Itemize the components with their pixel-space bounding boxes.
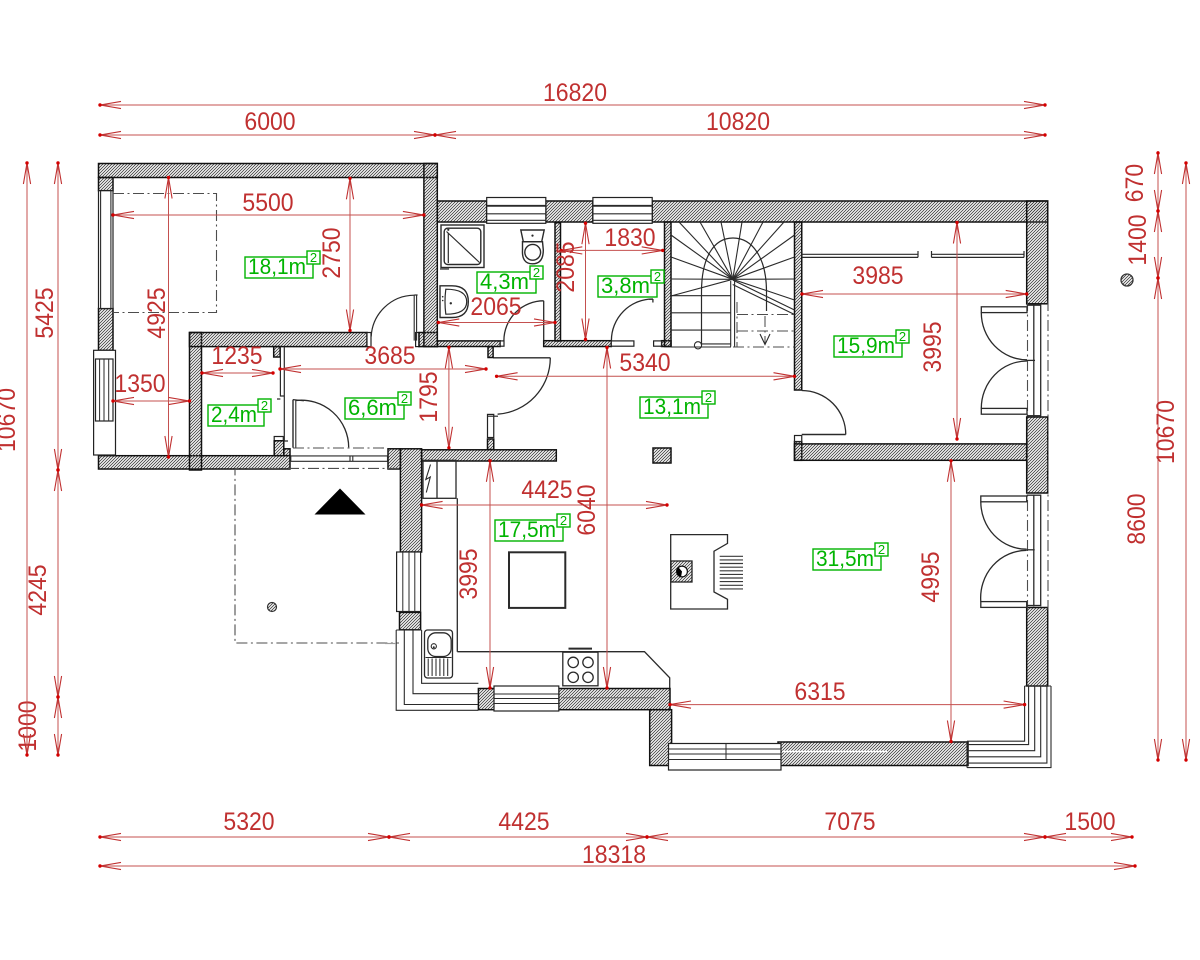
svg-text:5500: 5500	[242, 189, 293, 217]
svg-text:18,1m: 18,1m	[248, 254, 306, 279]
svg-text:6,6m: 6,6m	[348, 395, 397, 420]
svg-text:2: 2	[878, 542, 885, 557]
svg-text:6315: 6315	[794, 678, 845, 706]
svg-text:2: 2	[401, 391, 408, 406]
svg-text:1000: 1000	[14, 700, 42, 751]
svg-text:2750: 2750	[318, 227, 346, 278]
svg-text:4995: 4995	[917, 551, 945, 602]
svg-text:7075: 7075	[824, 808, 875, 836]
svg-text:31,5m: 31,5m	[816, 546, 874, 571]
svg-text:6000: 6000	[244, 108, 295, 136]
svg-text:3685: 3685	[364, 342, 415, 370]
svg-text:5340: 5340	[619, 349, 670, 377]
svg-text:2: 2	[654, 269, 661, 284]
svg-text:8600: 8600	[1123, 493, 1151, 544]
svg-text:1350: 1350	[114, 370, 165, 398]
svg-text:4925: 4925	[143, 287, 171, 338]
svg-text:2: 2	[705, 390, 712, 405]
svg-text:2: 2	[533, 265, 540, 280]
svg-text:3985: 3985	[852, 262, 903, 290]
svg-text:18318: 18318	[582, 841, 646, 869]
svg-text:2: 2	[310, 250, 317, 265]
svg-text:5425: 5425	[31, 287, 59, 338]
svg-text:2: 2	[261, 398, 268, 413]
svg-text:10670: 10670	[0, 388, 21, 452]
svg-text:2085: 2085	[552, 241, 580, 292]
svg-text:3995: 3995	[455, 548, 483, 599]
svg-text:2: 2	[560, 513, 567, 528]
svg-text:3,8m: 3,8m	[601, 273, 650, 298]
svg-text:1830: 1830	[604, 224, 655, 252]
svg-text:2,4m: 2,4m	[211, 402, 257, 427]
svg-text:13,1m: 13,1m	[643, 394, 701, 419]
svg-text:670: 670	[1121, 164, 1149, 202]
svg-text:1500: 1500	[1064, 808, 1115, 836]
svg-text:17,5m: 17,5m	[498, 517, 556, 542]
svg-text:1400: 1400	[1124, 214, 1152, 265]
svg-text:10820: 10820	[706, 108, 770, 136]
svg-text:4245: 4245	[24, 564, 52, 615]
svg-text:5320: 5320	[223, 808, 274, 836]
svg-text:4,3m: 4,3m	[480, 269, 529, 294]
svg-text:16820: 16820	[543, 79, 607, 107]
svg-text:4425: 4425	[498, 808, 549, 836]
svg-text:6040: 6040	[573, 484, 601, 535]
svg-text:1235: 1235	[211, 342, 262, 370]
svg-text:1795: 1795	[415, 371, 443, 422]
svg-text:4425: 4425	[521, 476, 572, 504]
svg-text:15,9m: 15,9m	[837, 333, 895, 358]
svg-text:2: 2	[899, 329, 906, 344]
svg-text:2065: 2065	[470, 293, 521, 321]
svg-text:10670: 10670	[1152, 400, 1180, 464]
svg-text:3995: 3995	[919, 321, 947, 372]
